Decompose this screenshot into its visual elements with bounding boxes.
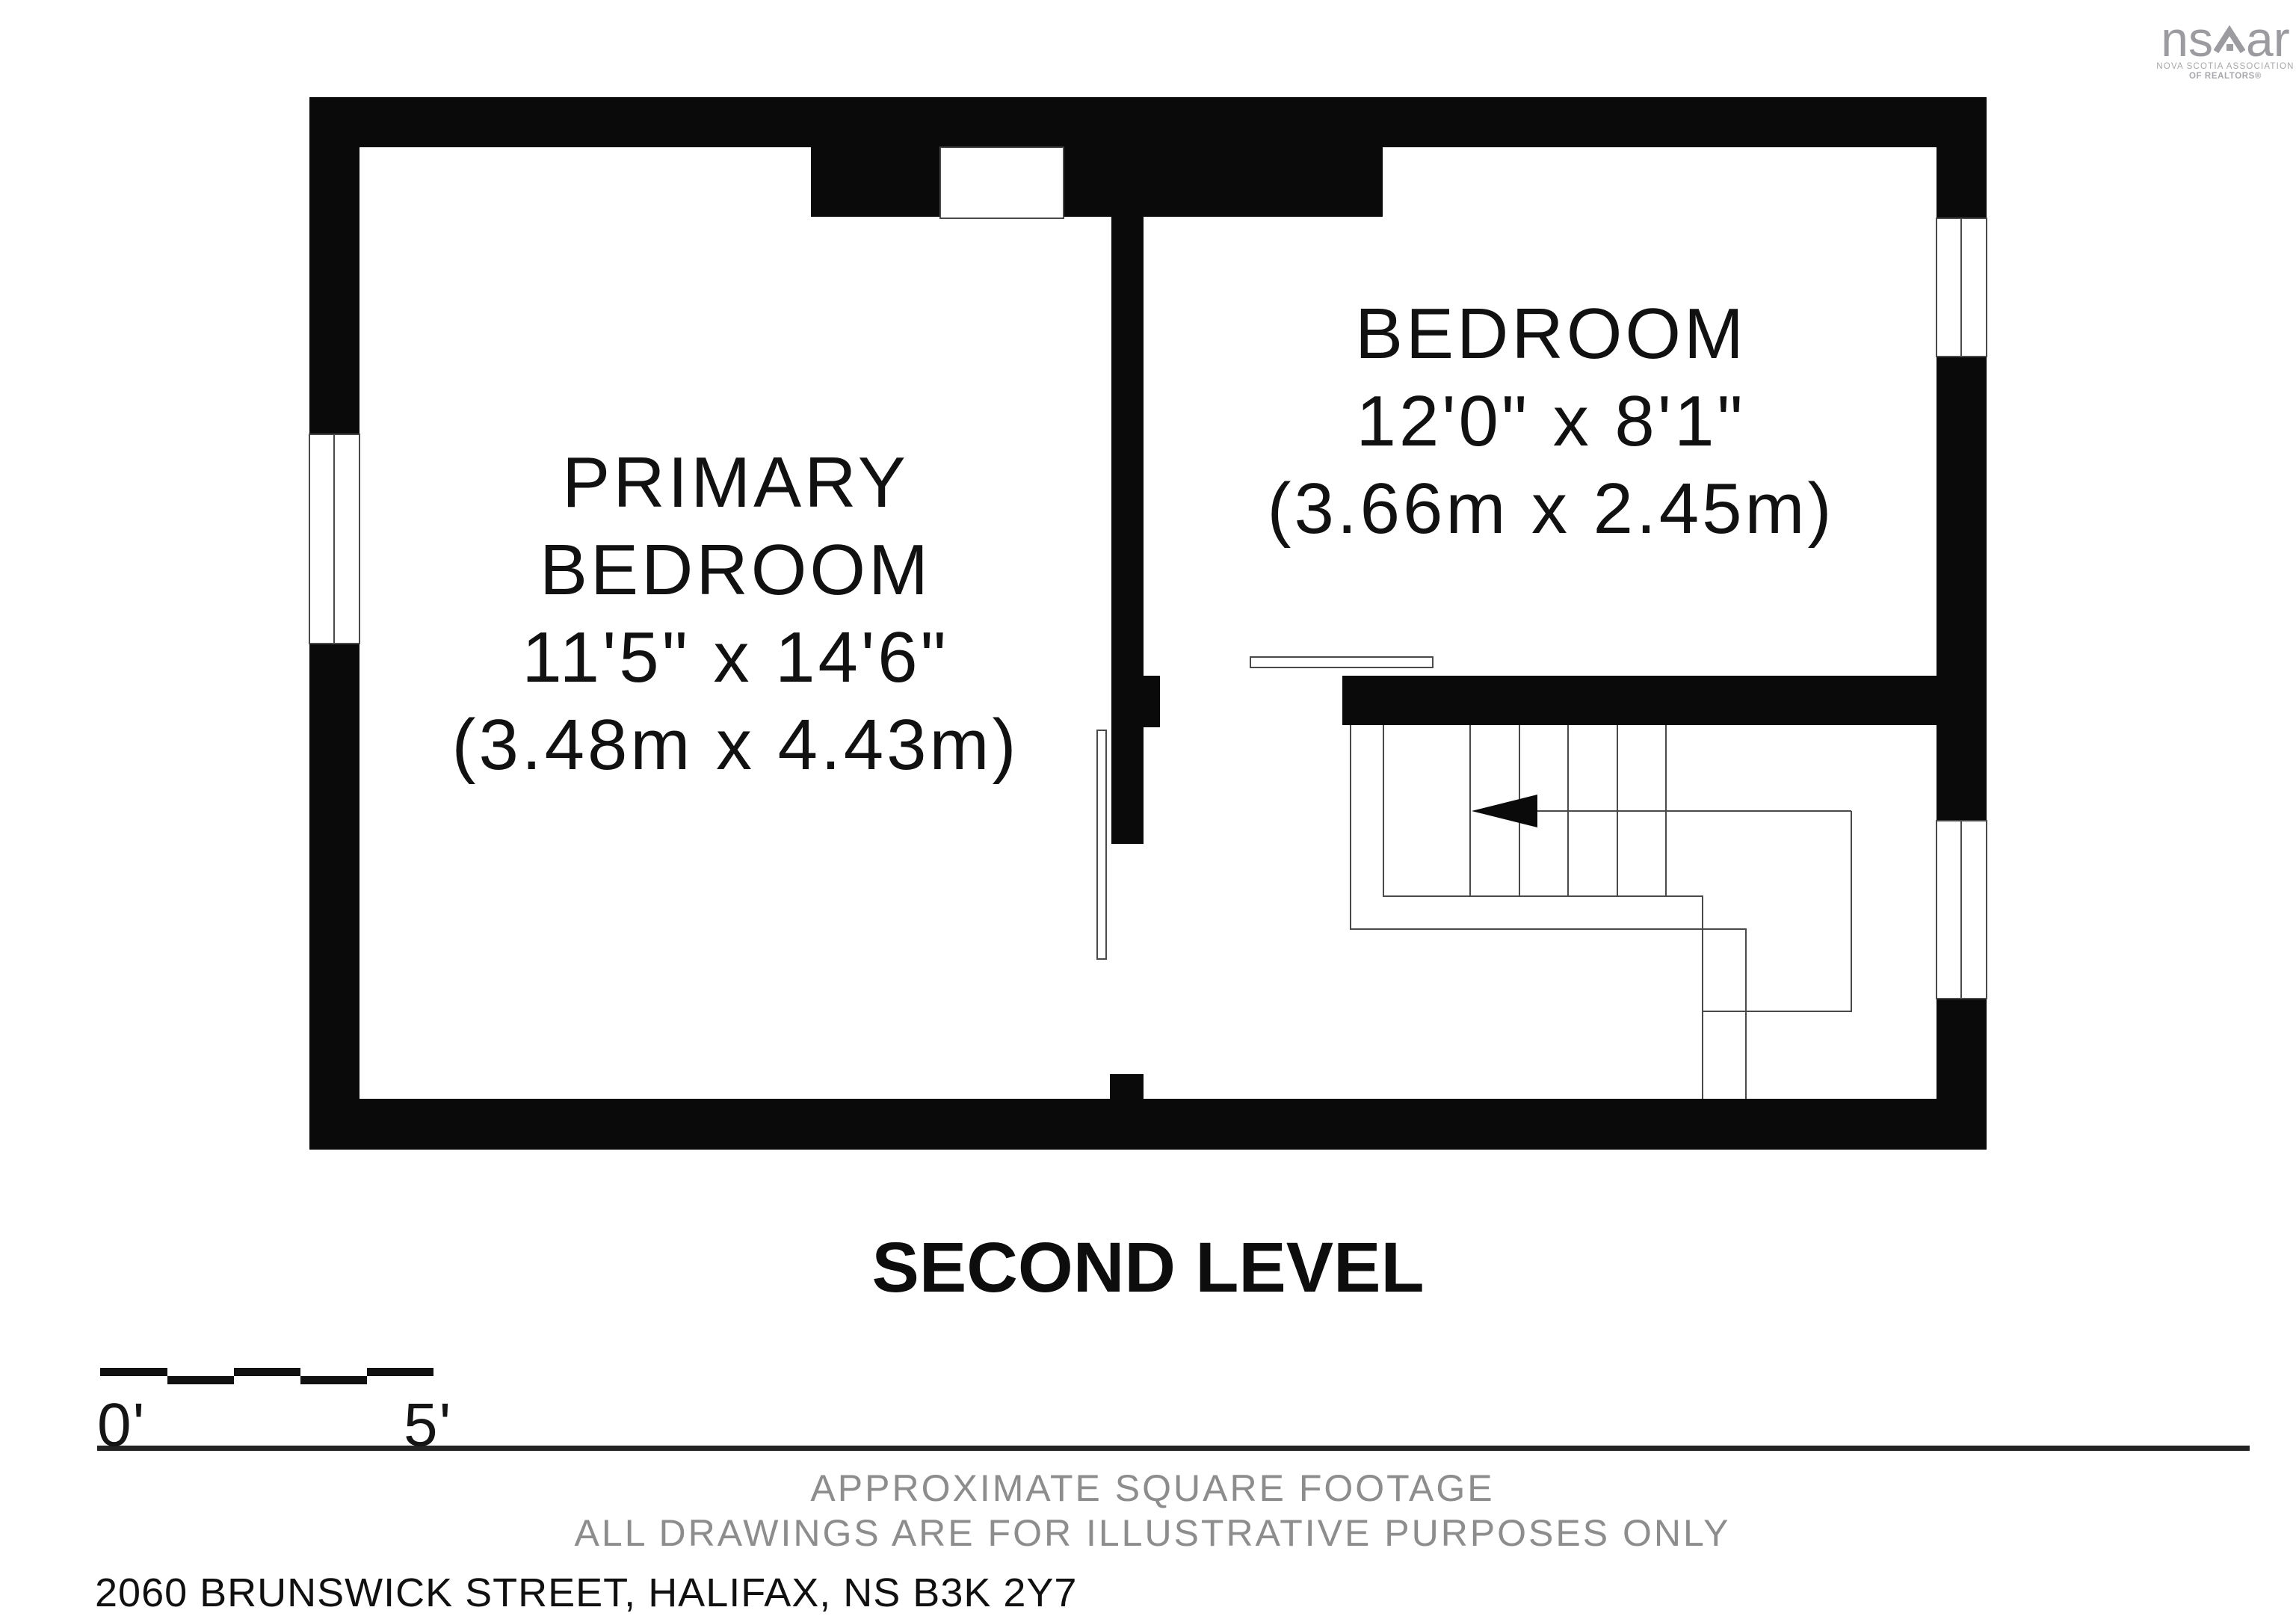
wall-dividing-jog — [1144, 676, 1160, 727]
nsar-subtext: NOVA SCOTIA ASSOCIATION OF REALTORS® — [2156, 62, 2294, 81]
nsar-subtext-line1: NOVA SCOTIA ASSOCIATION — [2156, 62, 2294, 71]
wall-left-lower — [309, 644, 359, 1150]
scale-label-end: 5' — [404, 1390, 452, 1461]
bedroom-dims-metric: (3.66m x 2.45m) — [1268, 465, 1835, 552]
stair-arrow-icon — [1472, 795, 1537, 827]
scale-bar-segment — [300, 1376, 367, 1384]
scale-bar-segment — [167, 1376, 234, 1384]
level-title: SECOND LEVEL — [872, 1227, 1425, 1309]
stair-outer-boundary — [1351, 725, 1746, 1099]
nsar-wordmark-right: ar — [2246, 18, 2290, 60]
wall-right-middle — [1937, 357, 1987, 821]
wall-dividing — [1111, 217, 1144, 844]
scale-bar-segment — [234, 1368, 300, 1376]
footer-address: 2060 BRUNSWICK STREET, HALIFAX, NS B3K 2… — [95, 1570, 1077, 1616]
wall-top-thick-mass — [811, 97, 1383, 217]
bedroom-dims-imperial: 12'0" x 8'1" — [1268, 377, 1835, 465]
primary-bedroom-dims-metric: (3.48m x 4.43m) — [452, 701, 1019, 789]
stairs — [1351, 725, 1851, 1099]
nsar-wordmark-left: ns — [2161, 18, 2213, 60]
nsar-subtext-line2: OF REALTORS® — [2189, 72, 2262, 81]
scale-label-start: 0' — [97, 1390, 146, 1461]
nsar-wordmark: ns ar — [2161, 16, 2289, 60]
primary-bedroom-name-line2: BEDROOM — [452, 526, 1019, 614]
stair-railing — [1250, 657, 1433, 667]
top-wall-recess — [940, 147, 1064, 218]
scale-bar-segment — [100, 1368, 167, 1376]
room-label-bedroom: BEDROOM 12'0" x 8'1" (3.66m x 2.45m) — [1268, 290, 1835, 552]
primary-bedroom-dims-imperial: 11'5" x 14'6" — [452, 614, 1019, 701]
nsar-logo: ns ar NOVA SCOTIA ASSOCIATION OF REALTOR… — [2156, 16, 2295, 81]
bedroom-name: BEDROOM — [1268, 290, 1835, 377]
wall-left-upper — [309, 97, 359, 434]
floorplan-page: { "logo": { "wordmark_left": "ns", "word… — [0, 0, 2296, 1622]
wall-door-stub — [1110, 1074, 1144, 1099]
floor-plan-drawing — [0, 0, 2296, 1622]
footer-note-line2: ALL DRAWINGS ARE FOR ILLUSTRATIVE PURPOS… — [575, 1511, 1731, 1555]
scale-bar-segment — [367, 1368, 433, 1376]
room-label-primary-bedroom: PRIMARY BEDROOM 11'5" x 14'6" (3.48m x 4… — [452, 439, 1019, 789]
primary-bedroom-name-line1: PRIMARY — [452, 439, 1019, 526]
stair-inner-boundary — [1383, 725, 1703, 1099]
house-roof-icon — [2214, 16, 2245, 58]
wall-stair-top — [1342, 676, 1987, 725]
footer-note-line1: APPROXIMATE SQUARE FOOTAGE — [810, 1467, 1494, 1510]
wall-bottom — [309, 1099, 1987, 1150]
door-leaf — [1097, 730, 1106, 959]
stair-lower-flight — [1703, 811, 1851, 1011]
scale-bar — [100, 1368, 433, 1384]
wall-right-upper — [1937, 97, 1987, 218]
